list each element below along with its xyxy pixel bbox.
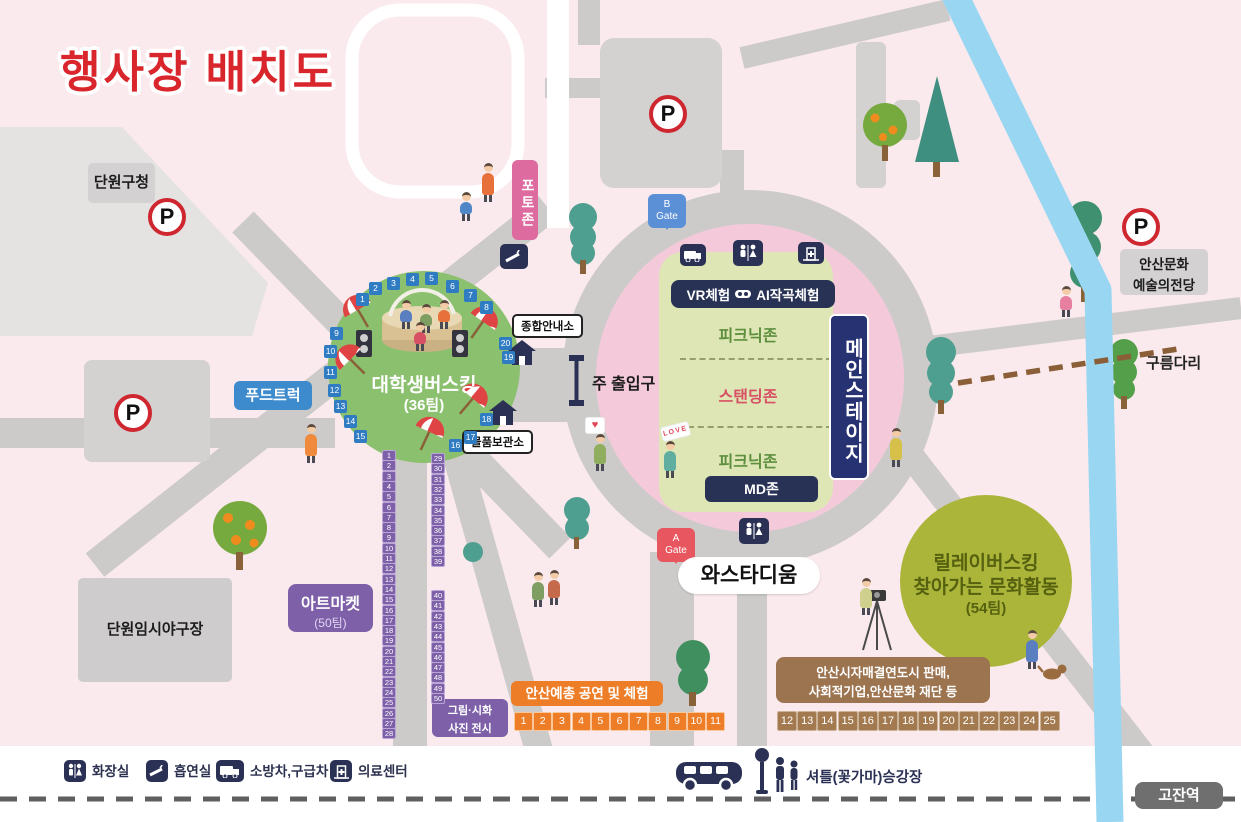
zone-divider (688, 426, 832, 428)
relay-teams-label: (54팀) (896, 597, 1076, 618)
yechong-booth-number: 6 (610, 712, 629, 731)
picnic-zone-top-label: 피크닉존 (663, 322, 833, 346)
market-booth-number: 2 (382, 460, 396, 471)
market-booth-number: 31 (431, 474, 445, 485)
main-entrance-label: 주 출입구 (592, 370, 655, 394)
stadium-name-label: 와스타디움 (678, 557, 820, 594)
sister-city-booth-number: 12 (777, 711, 797, 731)
art-market-label: 아트마켓 (50팀) (288, 584, 373, 632)
sister-city-booth-number: 15 (838, 711, 858, 731)
parking-icon: P (148, 198, 186, 236)
main-stage-label: 메인스테이지 (829, 314, 869, 480)
fire-ambulance-icon (680, 244, 706, 266)
busking-booth-number: 7 (464, 289, 477, 302)
person-illustration (888, 428, 904, 467)
parking-icon: P (114, 394, 152, 432)
medical-center-icon (798, 242, 824, 264)
market-booth-number: 33 (431, 494, 445, 505)
medical-center-icon (330, 760, 352, 782)
relay-activity-label: 찾아가는 문화활동 (896, 572, 1076, 599)
person-illustration (458, 192, 474, 221)
district-office-label: 단원구청 (88, 163, 155, 203)
person-illustration (1058, 286, 1074, 317)
locker-house-icon (489, 400, 517, 431)
market-booth-number: 13 (382, 574, 396, 585)
person-illustration (662, 441, 678, 478)
food-truck-label: 푸드트럭 (234, 381, 312, 410)
toilet-icon (733, 240, 763, 266)
busking-booth-number: 4 (406, 273, 419, 286)
busking-booth-number: 19 (502, 351, 515, 364)
busking-booth-number: 20 (499, 337, 512, 350)
toilet-icon (64, 760, 86, 782)
market-booth-number: 26 (382, 708, 396, 719)
main-entrance-icon (569, 355, 584, 411)
page-title: 행사장 배치도 (60, 36, 336, 100)
market-booth-number: 6 (382, 502, 396, 513)
market-booth-number: 25 (382, 697, 396, 708)
sister-city-booth-number: 25 (1040, 711, 1060, 731)
busking-booth-number: 6 (446, 280, 459, 293)
person-illustration (546, 570, 562, 605)
yechong-booth-number: 5 (591, 712, 610, 731)
yechong-booth-number: 9 (668, 712, 687, 731)
busking-booth-number: 16 (449, 439, 462, 452)
shuttle-stop-label: 셔틀(꽃가마)승강장 (806, 766, 922, 787)
vr-ai-experience-label: VR체험 AI작곡체험 (671, 280, 835, 308)
market-booth-number: 30 (431, 463, 445, 474)
busking-booth-number: 18 (480, 413, 493, 426)
sister-city-booth-number: 21 (959, 711, 979, 731)
sister-city-label: 안산시자매결연도시 판매, 사회적기업,안산문화 재단 등 (776, 657, 990, 703)
busking-booth-number: 1 (356, 293, 369, 306)
person-illustration (412, 322, 428, 351)
sister-city-booth-number: 13 (797, 711, 817, 731)
relay-busking-label: 릴레이버스킹 (896, 548, 1076, 575)
picnic-zone-bottom-label: 피크닉존 (663, 448, 833, 472)
event-venue-map: 행사장 배치도 단원구청 P P P P 단원임시야구장 안산문화 예술의전당 … (0, 0, 1241, 822)
yechong-label: 안산예총 공연 및 체험 (511, 681, 663, 706)
legend-medical-label: 의료센터 (358, 761, 408, 783)
market-booth-number: 45 (431, 642, 445, 653)
shuttle-bus-icon (676, 758, 746, 799)
legend-toilet-label: 화장실 (92, 761, 129, 783)
legend-smoking-label: 흡연실 (174, 761, 211, 783)
passengers-icon (772, 756, 802, 801)
person-illustration (858, 578, 874, 615)
sister-city-booth-number: 20 (939, 711, 959, 731)
sister-city-booth-number: 23 (999, 711, 1019, 731)
busking-booth-number: 8 (480, 301, 493, 314)
exhibit-label: 그림·시화 사진 전시 (432, 699, 508, 737)
heart-sign: ♥ (586, 418, 604, 433)
busking-booth-number: 14 (344, 415, 357, 428)
gate-b-pin: BGate (648, 194, 686, 228)
gojan-station-label: 고잔역 (1135, 782, 1223, 809)
sister-city-booth-number: 16 (858, 711, 878, 731)
sister-city-booth-number: 18 (898, 711, 918, 731)
market-booth-number: 22 (382, 666, 396, 677)
market-booth-number: 15 (382, 594, 396, 605)
market-booth-number: 19 (382, 635, 396, 646)
person-illustration (303, 424, 319, 463)
market-booth-number: 41 (431, 600, 445, 611)
sister-city-booth-number: 24 (1019, 711, 1039, 731)
busking-name-label: 대학생버스킹 (339, 370, 509, 397)
busking-booth-number: 2 (369, 282, 382, 295)
market-booth-number: 28 (382, 728, 396, 739)
arts-center-label: 안산문화 예술의전당 (1120, 249, 1208, 295)
smoking-icon (146, 760, 168, 782)
busking-booth-number: 17 (464, 431, 477, 444)
busking-booth-number: 12 (328, 384, 341, 397)
vr-goggles-icon (735, 287, 751, 302)
busking-booth-number: 5 (425, 272, 438, 285)
market-booth-number: 23 (382, 677, 396, 688)
busking-booth-number: 10 (324, 345, 337, 358)
busking-booth-number: 11 (324, 366, 337, 379)
market-booth-number: 12 (382, 563, 396, 574)
parking-icon: P (1122, 208, 1160, 246)
yechong-booth-number: 10 (687, 712, 706, 731)
market-booth-number: 3 (382, 471, 396, 482)
cloud-bridge-label: 구름다리 (1146, 352, 1201, 373)
info-booth-label: 종합안내소 (512, 314, 583, 338)
sister-city-booth-number: 19 (918, 711, 938, 731)
smoking-icon (500, 244, 528, 269)
yechong-booth-number: 7 (629, 712, 648, 731)
person-illustration (480, 163, 496, 202)
fire-ambulance-icon (216, 760, 244, 782)
market-booth-number: 50 (431, 693, 445, 704)
person-illustration (592, 434, 608, 471)
person-illustration (1024, 630, 1040, 669)
bus-stop-sign-icon (754, 748, 770, 799)
market-booth-number: 9 (382, 532, 396, 543)
standing-zone-label: 스탠딩존 (663, 383, 833, 407)
market-booth-number: 5 (382, 491, 396, 502)
parking-icon: P (649, 95, 687, 133)
yechong-booth-number: 2 (533, 712, 552, 731)
busking-booth-number: 15 (354, 430, 367, 443)
sister-city-booth-number: 22 (979, 711, 999, 731)
market-booth-number: 16 (382, 605, 396, 616)
market-booth-number: 44 (431, 631, 445, 642)
market-booth-number: 39 (431, 556, 445, 567)
busking-teams-label: (36팀) (339, 394, 509, 415)
market-booth-number: 48 (431, 672, 445, 683)
md-zone-label: MD존 (705, 476, 818, 502)
person-illustration (530, 572, 546, 607)
legend-fire-ambulance-label: 소방차,구급차 (250, 761, 328, 783)
yechong-booth-number: 11 (706, 712, 725, 731)
yechong-booth-number: 4 (572, 712, 591, 731)
sister-city-booth-number: 14 (817, 711, 837, 731)
busking-booth-number: 9 (330, 327, 343, 340)
busking-booth-number: 3 (387, 277, 400, 290)
market-booth-number: 34 (431, 505, 445, 516)
market-booth-number: 37 (431, 535, 445, 546)
yechong-booth-number: 1 (514, 712, 533, 731)
sister-city-booth-number: 17 (878, 711, 898, 731)
person-illustration (436, 300, 452, 329)
photo-zone-label: 포토존 (512, 160, 538, 240)
zone-divider (680, 358, 832, 360)
toilet-icon (739, 518, 769, 544)
market-booth-number: 42 (431, 611, 445, 622)
gate-a-pin: AGate (657, 528, 695, 562)
yechong-booth-number: 8 (648, 712, 667, 731)
yechong-booth-number: 3 (552, 712, 571, 731)
busking-booth-number: 13 (334, 400, 347, 413)
baseball-field-label: 단원임시야구장 (78, 578, 232, 682)
